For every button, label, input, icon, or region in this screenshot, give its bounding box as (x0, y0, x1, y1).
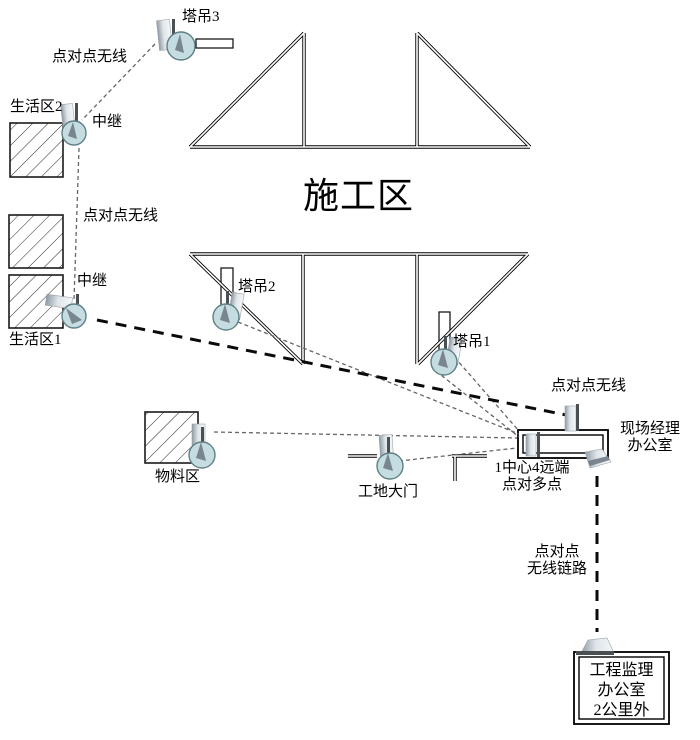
relay1-radio (61, 103, 86, 145)
p2p-wireless-mid-label: 点对点无线 (83, 208, 158, 225)
manager-office-label-line1: 现场经理 (608, 421, 692, 438)
office-left-antenna (526, 432, 540, 457)
office-top-antenna (565, 404, 579, 431)
link-relay2-office-p2p (97, 320, 576, 417)
materials-area-label: 物料区 (155, 469, 200, 486)
construction-zone-label: 施工区 (303, 176, 414, 216)
link-crane1-office-a (450, 352, 519, 431)
construction-structures (190, 33, 530, 481)
supervision-office-label-line1: 工程监理 (579, 661, 664, 681)
p2p-wireless-right-label: 点对点无线 (551, 378, 626, 395)
hub-mode-label: 1中心4远端 点对多点 (483, 460, 581, 494)
network-topology-diagram: 塔吊3 点对点无线 生活区2 中继 点对点无线 中继 生活区1 施工区 塔吊2 … (0, 0, 700, 740)
materials-radio (189, 424, 215, 468)
gate-label: 工地大门 (358, 484, 418, 501)
middle-box (9, 215, 63, 268)
manager-office-label: 现场经理 办公室 (608, 421, 692, 455)
crane3-jib (196, 39, 233, 48)
gate-radio (377, 435, 403, 479)
manager-office-label-line2: 办公室 (608, 438, 692, 455)
link-materials-office (214, 432, 517, 438)
crane1-label: 塔吊1 (453, 334, 491, 351)
p2p-link-label: 点对点 无线链路 (518, 544, 596, 578)
hub-mode-label-line1: 1中心4远端 (483, 460, 581, 477)
hub-mode-label-line2: 点对多点 (483, 477, 581, 494)
supervision-office-label-line3: 2公里外 (579, 701, 664, 721)
p2p-wireless-top-label: 点对点无线 (52, 49, 127, 66)
area-boxes (9, 123, 198, 463)
supervision-office-label-line2: 办公室 (579, 681, 664, 701)
relay1-label: 中继 (92, 114, 122, 131)
diagram-canvas (0, 0, 700, 740)
supervision-antenna (576, 638, 614, 655)
p2p-link-label-line1: 点对点 (518, 544, 596, 561)
living-area1-label: 生活区1 (9, 332, 62, 349)
relay2-label: 中继 (77, 273, 107, 290)
crane2-label: 塔吊2 (238, 279, 276, 296)
living-area2-box (10, 123, 63, 177)
crane3-label: 塔吊3 (182, 9, 220, 26)
supervision-office-label: 工程监理 办公室 2公里外 (579, 661, 664, 721)
p2p-link-label-line2: 无线链路 (518, 561, 596, 578)
living-area2-label: 生活区2 (10, 99, 63, 116)
crane2-radio (213, 291, 244, 330)
